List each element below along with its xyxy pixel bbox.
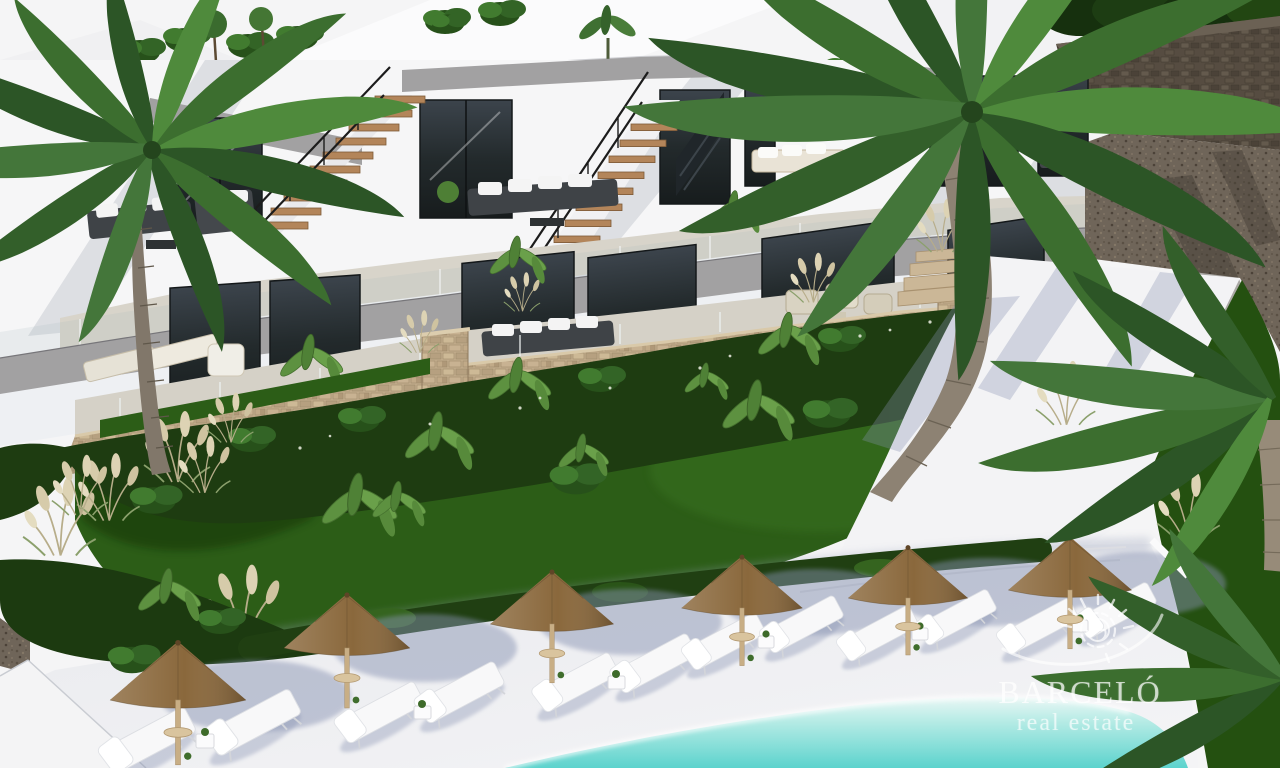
villa-pool-scene	[0, 0, 1280, 768]
render-image: BARCELÓ real estate	[0, 0, 1280, 768]
